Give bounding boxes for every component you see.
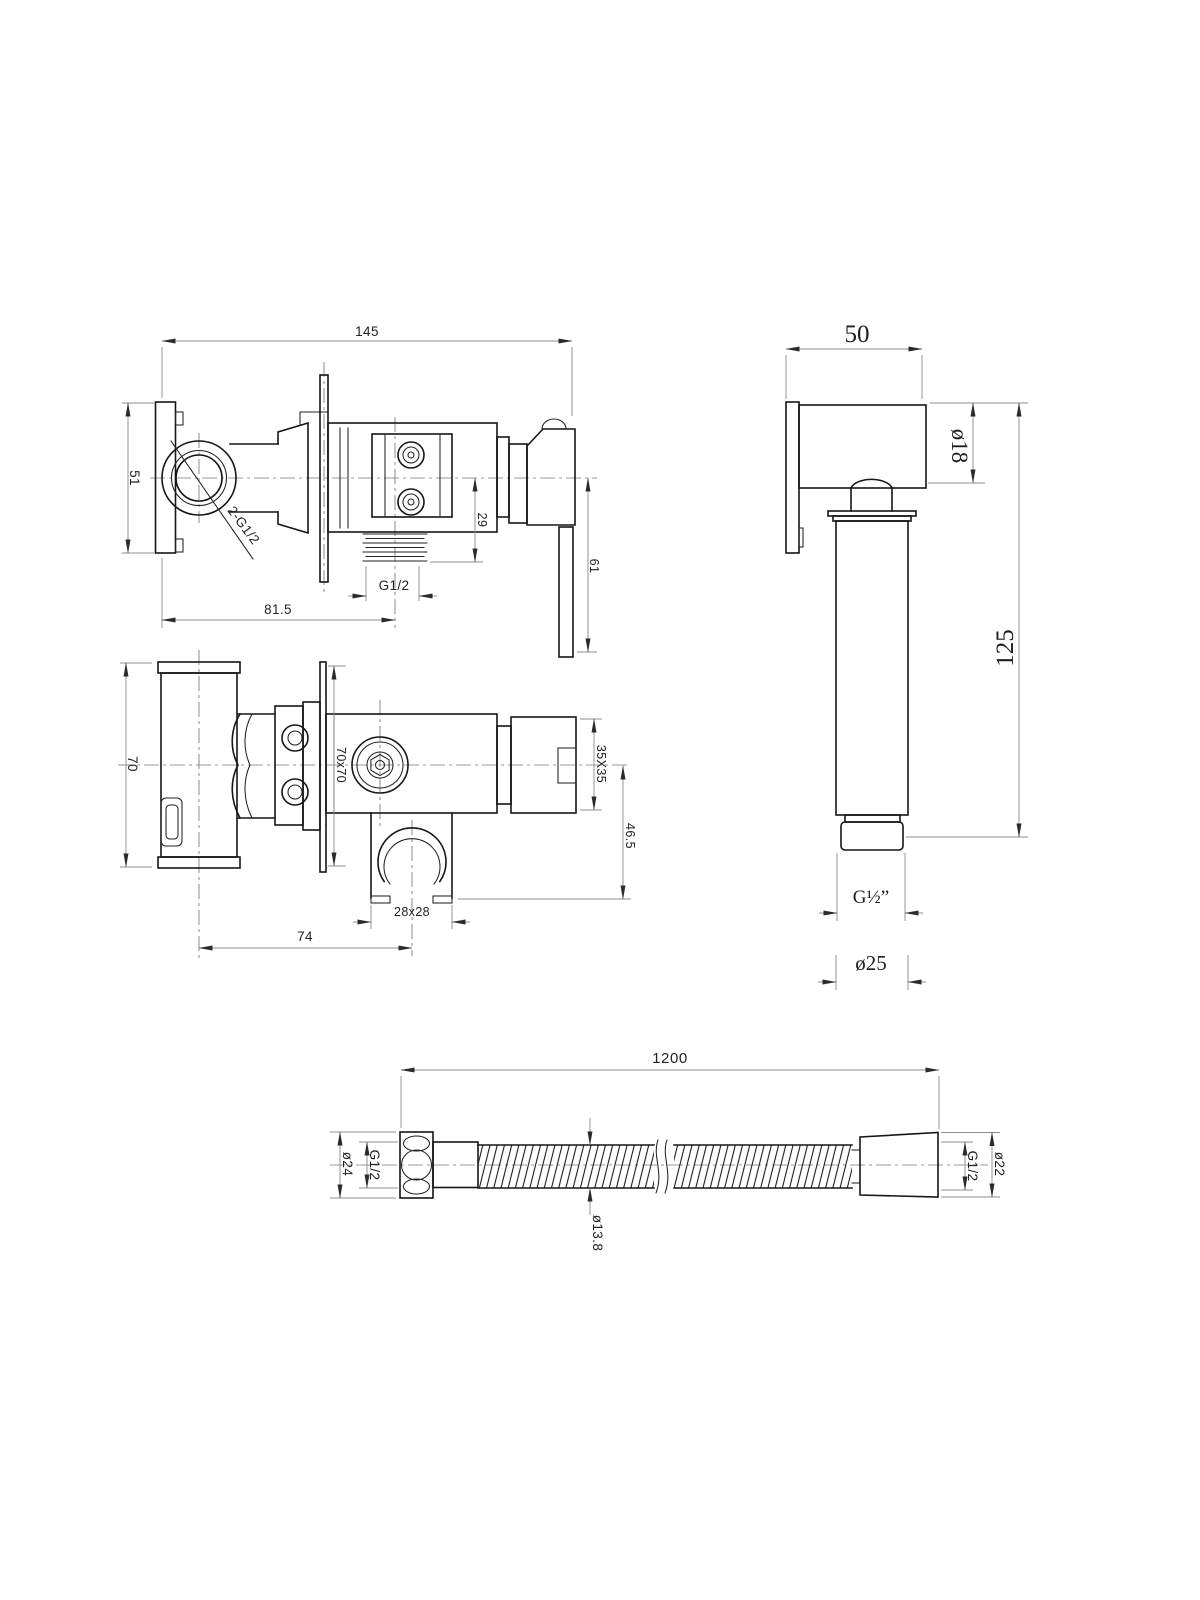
dim-label: G1/2 <box>965 1151 980 1182</box>
port-screw-bottom <box>398 489 424 515</box>
hose-view: 1200 ø24 G1/2 ø13.8 G1/2 <box>330 1050 1007 1251</box>
dim-sprayer-thread: G½” <box>819 853 923 921</box>
nut-facet-bottom <box>404 1179 430 1194</box>
mixer-top-view: 70 70x70 35X35 46.5 28x28 <box>118 650 637 958</box>
dim-label: 81.5 <box>264 602 292 617</box>
dim-label: 28x28 <box>394 905 430 919</box>
ports-section <box>275 706 303 825</box>
dim-label: 125 <box>992 629 1019 667</box>
port-screw-bottom-dot <box>408 499 414 505</box>
dim-handle-35x35: 35X35 <box>580 719 608 810</box>
dim-body-dia: ø25 <box>818 951 926 990</box>
flange-hub <box>303 702 320 830</box>
dim-label: ø22 <box>992 1152 1007 1176</box>
hex-nut-wave-2 <box>245 714 252 818</box>
collar-ledge <box>300 412 327 424</box>
dim-lever: 61 <box>577 478 601 652</box>
dim-label: G½” <box>853 887 889 908</box>
dim-label: 35X35 <box>594 745 608 783</box>
break-line-1 <box>656 1140 659 1193</box>
technical-drawing: 145 51 2-G1/2 29 61 G1/2 <box>0 0 1200 1600</box>
dim-label: 61 <box>587 559 601 574</box>
outlet-thread <box>363 534 427 561</box>
dim-spacing-74: 74 <box>199 929 412 948</box>
dim-plate-70x70: 70x70 <box>328 666 348 866</box>
dim-label: 29 <box>475 513 489 528</box>
dim-holder-28x28: 28x28 <box>353 905 470 929</box>
port-screw-top-dot <box>408 452 414 458</box>
dim-width: 145 <box>162 324 572 416</box>
sprayer-head <box>799 405 926 488</box>
dim-label: 46.5 <box>623 823 637 849</box>
port-screw-top <box>398 442 424 468</box>
drawing-canvas: 145 51 2-G1/2 29 61 G1/2 <box>0 0 1200 1600</box>
dim-label: 70x70 <box>334 747 348 783</box>
dim-outlet-offset: 29 <box>430 478 489 562</box>
dim-holder-offset: 46.5 <box>458 766 637 899</box>
handle-button <box>542 419 566 429</box>
port-screw-bottom-inner <box>403 494 419 510</box>
sprayer-grip <box>836 521 908 815</box>
handle-body <box>527 429 575 525</box>
grip-base-plate <box>845 815 900 822</box>
nut-facet-top <box>404 1136 430 1151</box>
handle-lever <box>559 527 573 657</box>
dim-height: 125 <box>906 403 1028 837</box>
cartridge-step-1 <box>497 437 509 517</box>
dim-label: ø18 <box>947 429 972 464</box>
wall-plate <box>156 402 176 553</box>
dim-label: G1/2 <box>367 1150 382 1181</box>
hose-corrugation-left <box>478 1145 654 1188</box>
sprayer-bracket <box>786 402 799 553</box>
port-top <box>282 725 308 751</box>
dim-label: 50 <box>845 321 870 348</box>
port-bottom <box>282 779 308 805</box>
sprayer-neck-dome <box>851 479 892 488</box>
dim-plate-height: 51 <box>122 403 154 553</box>
port-bottom-inner <box>288 785 302 799</box>
cartridge-step-2 <box>509 444 527 523</box>
dim-label: 145 <box>355 324 379 339</box>
dim-label: 1200 <box>652 1050 688 1067</box>
shower-holder <box>371 813 452 903</box>
port-screw-top-inner <box>403 447 419 463</box>
dim-label: 70 <box>125 756 140 772</box>
hand-sprayer-view: 50 ø18 125 G½” ø25 <box>786 321 1028 990</box>
plate-notch-top <box>176 412 184 425</box>
dim-label: 74 <box>297 929 313 944</box>
dim-label: ø25 <box>855 951 887 975</box>
break-line-2 <box>665 1140 668 1193</box>
port-top-inner <box>288 731 302 745</box>
dim-label: G1/2 <box>379 578 410 593</box>
dim-head-dia: ø18 <box>928 403 1028 483</box>
grip-connector <box>841 822 903 850</box>
dim-label: ø13.8 <box>590 1215 605 1252</box>
dim-fitting-thread: G1/2 <box>941 1142 980 1190</box>
plate-notch-bottom <box>176 539 184 552</box>
dim-depth: 81.5 <box>162 558 395 628</box>
hose-corrugation-right <box>674 1145 852 1188</box>
dim-length-1200: 1200 <box>401 1050 939 1129</box>
pipe-latch-inner <box>166 805 178 839</box>
dim-outlet-thread: G1/2 <box>348 566 437 601</box>
dim-head: 50 <box>786 321 922 399</box>
dim-label: 51 <box>127 470 142 486</box>
mixer-side-view: 145 51 2-G1/2 29 61 G1/2 <box>122 324 601 657</box>
hex-nut-wave-1 <box>232 714 240 818</box>
escutcheon-plate-top <box>320 662 326 872</box>
handle-notch <box>558 748 576 783</box>
dim-label: ø24 <box>340 1152 355 1177</box>
